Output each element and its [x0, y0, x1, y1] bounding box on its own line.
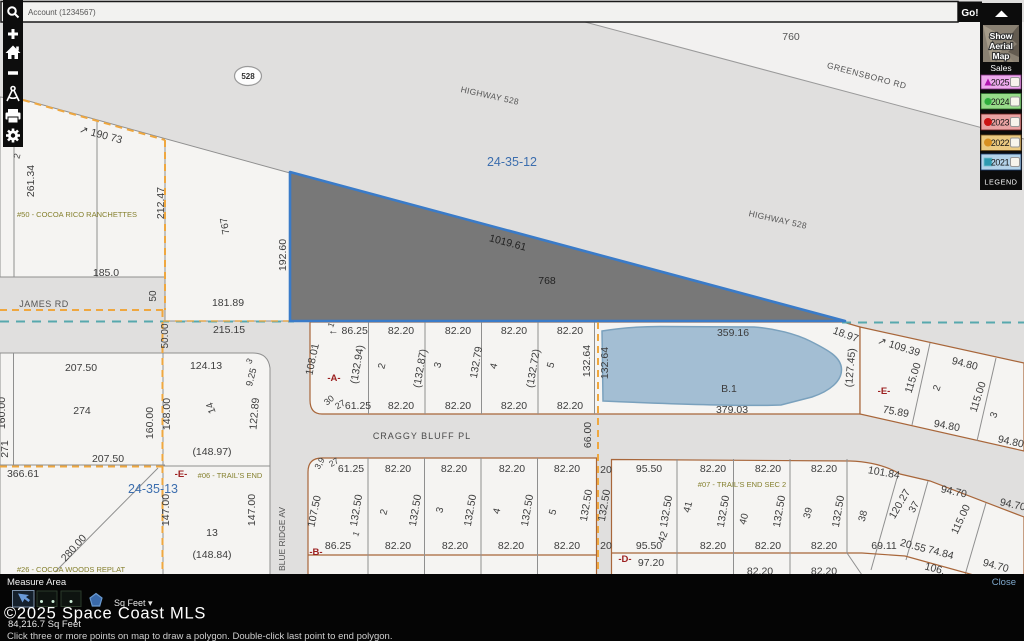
- svg-text:BLUE RIDGE AV: BLUE RIDGE AV: [277, 507, 287, 571]
- svg-text:Show: Show: [990, 31, 1013, 41]
- svg-text:160.00: 160.00: [144, 407, 156, 439]
- svg-text:61.25: 61.25: [345, 400, 371, 412]
- svg-text:181.89: 181.89: [212, 297, 244, 309]
- svg-text:147.00: 147.00: [160, 494, 172, 526]
- svg-text:-B-: -B-: [309, 547, 322, 558]
- svg-text:768: 768: [538, 275, 556, 287]
- svg-text:-A-: -A-: [327, 373, 340, 384]
- svg-text:-E-: -E-: [175, 469, 188, 480]
- svg-text:82.20: 82.20: [388, 325, 414, 337]
- svg-text:82.20: 82.20: [385, 463, 411, 475]
- svg-text:Close: Close: [992, 577, 1016, 588]
- svg-text:160.00: 160.00: [0, 397, 8, 429]
- svg-text:20: 20: [600, 464, 612, 476]
- svg-text:132.64: 132.64: [599, 347, 611, 379]
- svg-text:-D-: -D-: [618, 554, 631, 565]
- svg-text:147.00: 147.00: [246, 494, 258, 526]
- svg-text:66.00: 66.00: [582, 422, 594, 448]
- svg-text:CRAGGY BLUFF PL: CRAGGY BLUFF PL: [373, 431, 471, 441]
- svg-text:JAMES RD: JAMES RD: [19, 299, 69, 309]
- svg-text:379.03: 379.03: [716, 404, 748, 416]
- svg-text:86.25: 86.25: [325, 540, 351, 552]
- svg-text:82.20: 82.20: [501, 325, 527, 337]
- svg-text:Sales: Sales: [990, 63, 1011, 73]
- svg-text:82.20: 82.20: [557, 325, 583, 337]
- svg-text:82.20: 82.20: [557, 400, 583, 412]
- svg-text:212.47: 212.47: [155, 187, 167, 219]
- svg-text:274: 274: [73, 405, 91, 417]
- svg-text:82.20: 82.20: [700, 540, 726, 552]
- svg-text:271: 271: [0, 440, 11, 458]
- svg-text:2022: 2022: [991, 138, 1010, 148]
- svg-text:Map: Map: [993, 51, 1010, 61]
- svg-text:#07 - TRAIL'S END SEC 2: #07 - TRAIL'S END SEC 2: [698, 480, 786, 489]
- svg-text:82.20: 82.20: [811, 540, 837, 552]
- svg-text:Go!: Go!: [961, 8, 978, 19]
- svg-text:Aerial: Aerial: [989, 41, 1013, 51]
- svg-text:366.61: 366.61: [7, 468, 39, 480]
- svg-text:Account (1234567): Account (1234567): [28, 8, 96, 17]
- svg-text:24-35-12: 24-35-12: [487, 155, 537, 169]
- svg-text:82.20: 82.20: [442, 540, 468, 552]
- svg-text:20: 20: [600, 540, 612, 552]
- svg-text:61.25: 61.25: [338, 463, 364, 475]
- svg-text:82.20: 82.20: [445, 325, 471, 337]
- svg-text:LEGEND: LEGEND: [984, 178, 1017, 187]
- svg-text:261.34: 261.34: [25, 165, 37, 197]
- svg-text:2021: 2021: [991, 158, 1010, 168]
- svg-text:760: 760: [782, 31, 800, 43]
- svg-text:82.20: 82.20: [755, 540, 781, 552]
- svg-text:185.0: 185.0: [93, 267, 119, 279]
- svg-text:84,216.7 Sq Feet: 84,216.7 Sq Feet: [8, 619, 81, 630]
- svg-text:(148.97): (148.97): [192, 446, 231, 458]
- svg-text:82.20: 82.20: [498, 540, 524, 552]
- svg-text:13: 13: [206, 527, 218, 539]
- svg-text:528: 528: [241, 72, 255, 81]
- svg-text:192.60: 192.60: [277, 239, 289, 271]
- svg-text:207.50: 207.50: [92, 453, 124, 465]
- svg-text:95.50: 95.50: [636, 540, 662, 552]
- svg-text:82.20: 82.20: [700, 463, 726, 475]
- svg-text:207.50: 207.50: [65, 362, 97, 374]
- svg-text:(148.84): (148.84): [192, 549, 231, 561]
- svg-text:#06 - TRAIL'S END: #06 - TRAIL'S END: [198, 471, 263, 480]
- svg-text:82.20: 82.20: [441, 463, 467, 475]
- svg-text:82.20: 82.20: [499, 463, 525, 475]
- svg-text:2025: 2025: [991, 78, 1010, 88]
- svg-text:215.15: 215.15: [213, 324, 245, 336]
- svg-text:69.11: 69.11: [871, 540, 897, 552]
- svg-text:82.20: 82.20: [501, 400, 527, 412]
- svg-text:-E-: -E-: [878, 386, 891, 397]
- svg-text:148.00: 148.00: [161, 398, 173, 430]
- svg-text:B.1: B.1: [721, 383, 737, 395]
- svg-text:124.13: 124.13: [190, 360, 222, 372]
- svg-text:2024: 2024: [991, 97, 1010, 107]
- svg-text:50.00: 50.00: [160, 323, 171, 348]
- svg-text:82.20: 82.20: [388, 400, 414, 412]
- svg-text:Click three or more points on: Click three or more points on map to dra…: [7, 631, 392, 641]
- svg-text:#26 - COCOA WOODS REPLAT: #26 - COCOA WOODS REPLAT: [17, 565, 126, 574]
- svg-text:95.50: 95.50: [636, 463, 662, 475]
- svg-text:132.64: 132.64: [581, 345, 593, 377]
- svg-text:82.20: 82.20: [445, 400, 471, 412]
- svg-text:#50 - COCOA RICO RANCHETTES: #50 - COCOA RICO RANCHETTES: [17, 210, 137, 219]
- svg-text:82.20: 82.20: [811, 463, 837, 475]
- svg-text:24-35-13: 24-35-13: [128, 482, 178, 496]
- svg-text:Measure Area: Measure Area: [7, 577, 67, 588]
- svg-text:359.16: 359.16: [717, 327, 749, 339]
- svg-text:97.20: 97.20: [638, 557, 664, 569]
- svg-text:82.20: 82.20: [385, 540, 411, 552]
- svg-text:82.20: 82.20: [554, 540, 580, 552]
- svg-text:82.20: 82.20: [554, 463, 580, 475]
- svg-text:2023: 2023: [991, 118, 1010, 128]
- svg-text:50: 50: [148, 290, 159, 302]
- svg-text:82.20: 82.20: [755, 463, 781, 475]
